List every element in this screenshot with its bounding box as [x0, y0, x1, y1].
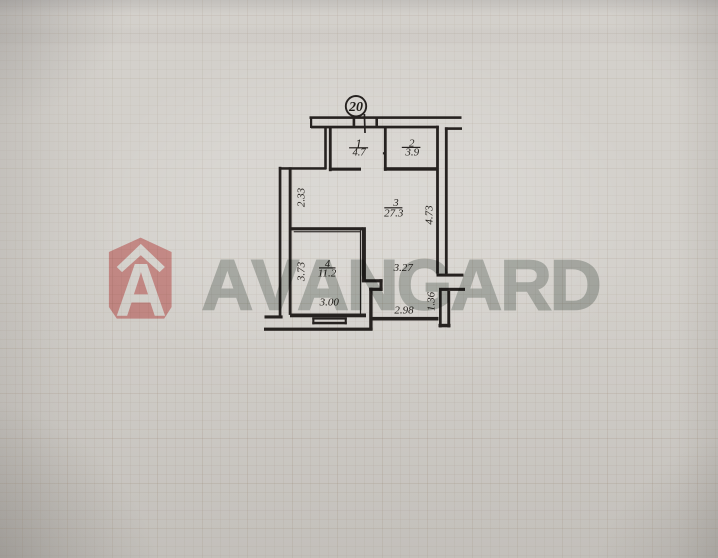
- svg-text:A: A: [115, 248, 167, 332]
- svg-text:AVANGARD: AVANGARD: [202, 245, 600, 325]
